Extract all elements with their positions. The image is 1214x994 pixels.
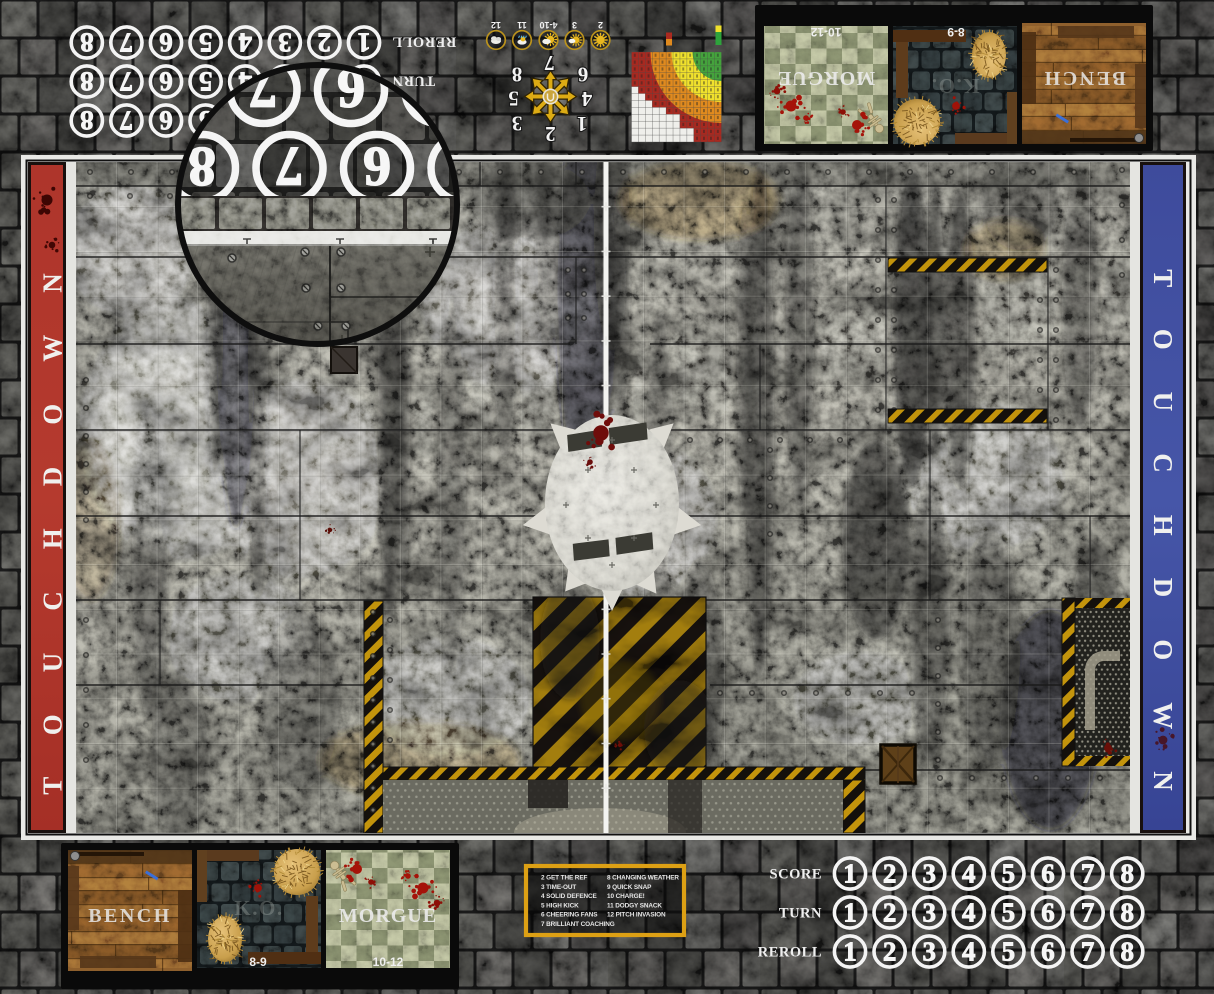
svg-text:6 CHEERING FANS: 6 CHEERING FANS [541, 912, 598, 919]
svg-text:BENCH: BENCH [88, 905, 172, 927]
svg-text:4: 4 [962, 937, 976, 967]
svg-text:8 CHANGING WEATHER: 8 CHANGING WEATHER [607, 875, 679, 882]
svg-text:K.O.: K.O. [234, 896, 283, 920]
svg-text:MORGUE: MORGUE [777, 67, 875, 89]
svg-text:7: 7 [1081, 859, 1095, 889]
svg-text:7: 7 [1081, 898, 1095, 928]
svg-text:2: 2 [883, 859, 897, 889]
svg-text:7: 7 [544, 51, 555, 75]
svg-text:SCORE: SCORE [770, 867, 822, 883]
svg-text:4: 4 [581, 87, 592, 111]
svg-text:10-12: 10-12 [373, 955, 404, 969]
svg-text:4: 4 [962, 859, 976, 889]
svg-text:8: 8 [80, 105, 94, 135]
svg-text:3 TIME-OUT: 3 TIME-OUT [541, 884, 576, 891]
svg-text:TOUCHDOWN: TOUCHDOWN [38, 231, 68, 795]
svg-text:2: 2 [545, 122, 556, 146]
svg-text:2: 2 [318, 27, 332, 57]
svg-text:6: 6 [159, 105, 173, 135]
svg-text:4: 4 [962, 898, 976, 928]
svg-text:6: 6 [1041, 859, 1055, 889]
svg-text:1: 1 [577, 112, 588, 136]
svg-text:9 QUICK SNAP: 9 QUICK SNAP [607, 884, 652, 891]
svg-text:7 BRILLIANT COACHING: 7 BRILLIANT COACHING [541, 921, 615, 928]
svg-text:3: 3 [512, 112, 523, 136]
svg-text:5: 5 [199, 66, 213, 96]
svg-text:5: 5 [1002, 859, 1016, 889]
svg-text:4 SOLID DEFENCE: 4 SOLID DEFENCE [541, 893, 598, 900]
svg-text:6: 6 [1041, 937, 1055, 967]
svg-text:8: 8 [80, 27, 94, 57]
svg-text:8: 8 [80, 66, 94, 96]
svg-text:7: 7 [120, 105, 134, 135]
svg-text:3: 3 [572, 20, 577, 30]
svg-text:8: 8 [512, 63, 523, 87]
svg-text:6: 6 [578, 63, 589, 87]
svg-text:REROLL: REROLL [392, 34, 456, 50]
svg-text:5: 5 [1002, 937, 1016, 967]
svg-text:8: 8 [1120, 937, 1134, 967]
svg-text:1: 1 [843, 859, 857, 889]
svg-text:6: 6 [159, 66, 173, 96]
svg-text:3: 3 [278, 27, 292, 57]
svg-text:12: 12 [491, 20, 501, 30]
svg-text:MORGUE: MORGUE [339, 905, 437, 927]
svg-text:8: 8 [1120, 898, 1134, 928]
svg-text:3: 3 [922, 937, 936, 967]
svg-text:7: 7 [120, 66, 134, 96]
svg-text:5: 5 [508, 87, 519, 111]
svg-text:4: 4 [238, 27, 252, 57]
svg-text:REROLL: REROLL [758, 945, 822, 961]
svg-text:1: 1 [357, 27, 371, 57]
svg-text:BENCH: BENCH [1042, 67, 1126, 89]
svg-text:K.O.: K.O. [930, 74, 979, 98]
svg-text:7: 7 [120, 27, 134, 57]
svg-text:2: 2 [883, 937, 897, 967]
svg-text:1: 1 [843, 937, 857, 967]
svg-text:5: 5 [199, 27, 213, 57]
svg-text:8: 8 [1120, 859, 1134, 889]
svg-text:TOUCHDOWN: TOUCHDOWN [1148, 269, 1178, 833]
svg-text:4-10: 4-10 [539, 20, 557, 30]
svg-text:3: 3 [922, 898, 936, 928]
svg-text:11 DODGY SNACK: 11 DODGY SNACK [607, 902, 662, 909]
svg-text:TURN: TURN [392, 73, 435, 89]
svg-text:2: 2 [883, 898, 897, 928]
svg-text:1: 1 [843, 898, 857, 928]
svg-text:10 CHARGE!: 10 CHARGE! [607, 893, 645, 900]
svg-text:6: 6 [1041, 898, 1055, 928]
svg-text:5 HIGH KICK: 5 HIGH KICK [541, 902, 579, 909]
svg-text:3: 3 [922, 859, 936, 889]
svg-text:6: 6 [159, 27, 173, 57]
svg-text:5: 5 [1002, 898, 1016, 928]
svg-text:10-12: 10-12 [810, 25, 841, 39]
svg-text:11: 11 [517, 20, 527, 30]
svg-text:TURN: TURN [779, 906, 822, 922]
svg-text:8-9: 8-9 [947, 25, 965, 39]
svg-text:2: 2 [598, 20, 603, 30]
svg-text:2 GET THE REF: 2 GET THE REF [541, 875, 587, 882]
svg-text:12 PITCH INVASION: 12 PITCH INVASION [607, 912, 666, 919]
svg-text:8-9: 8-9 [249, 955, 267, 969]
svg-text:7: 7 [1081, 937, 1095, 967]
